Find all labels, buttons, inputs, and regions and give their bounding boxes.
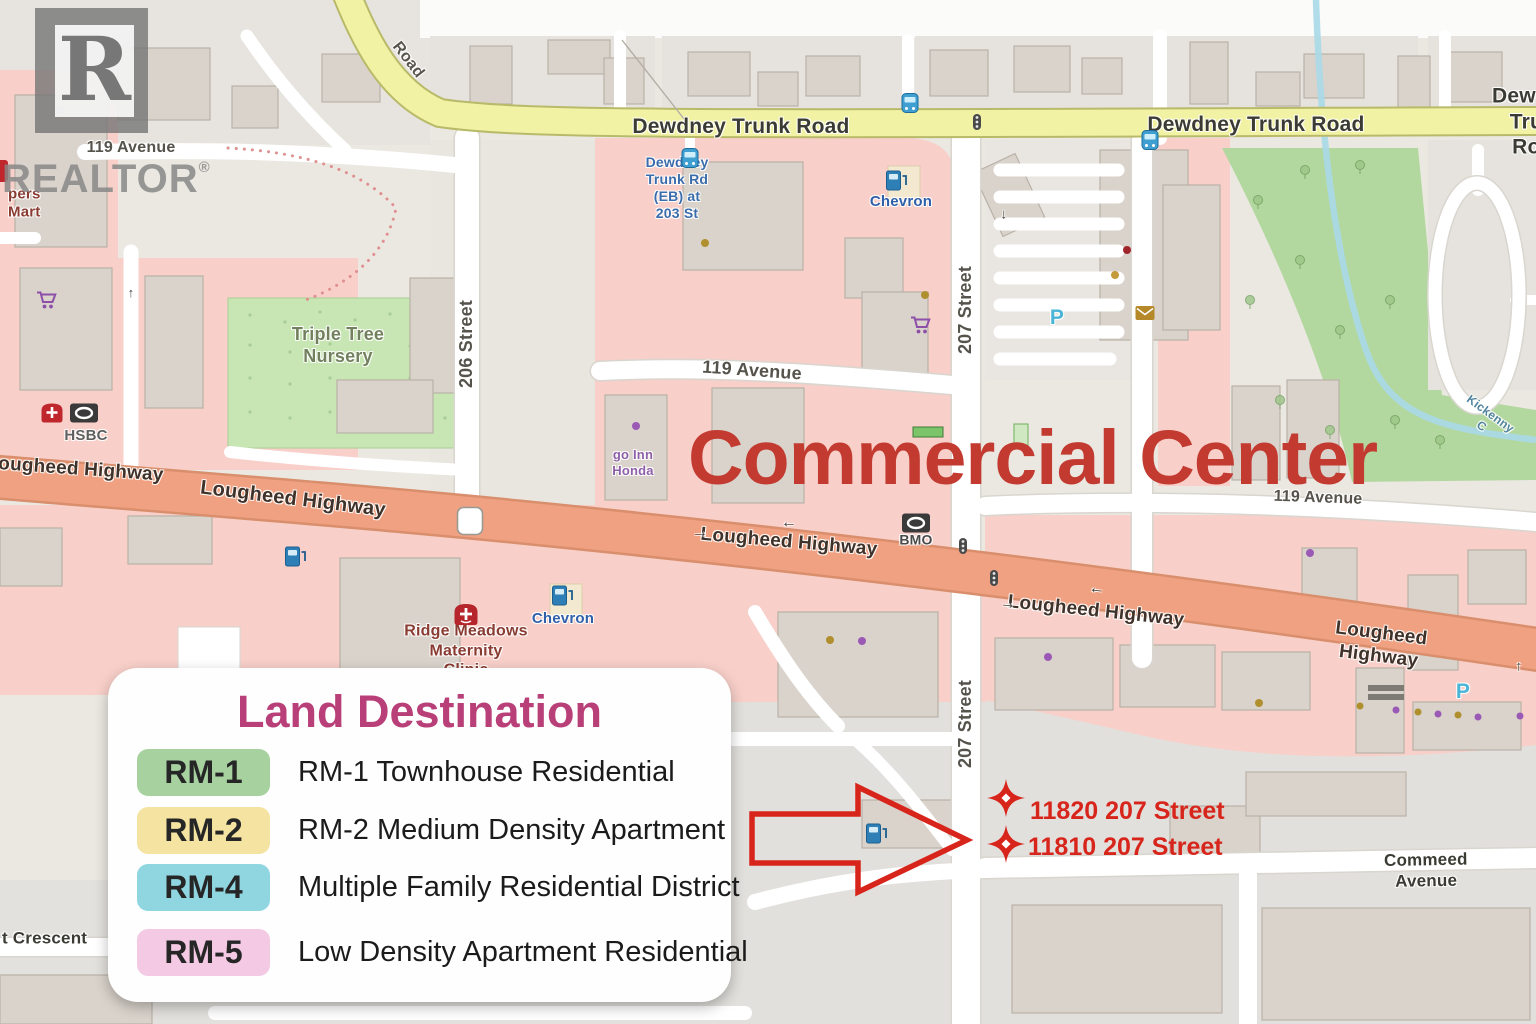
map-screenshot: RoadDewdney Trunk RoadDewdney Trunk Road… bbox=[0, 0, 1536, 1024]
legend-item-label: RM-2 Medium Density Apartment bbox=[298, 814, 725, 847]
legend-item-label: RM-1 Townhouse Residential bbox=[298, 756, 675, 789]
legend-item-label: Low Density Apartment Residential bbox=[298, 936, 748, 969]
legend-swatch: RM-1 bbox=[137, 749, 270, 796]
legend-item: RM-1RM-1 Townhouse Residential bbox=[137, 749, 675, 796]
legend-swatch: RM-2 bbox=[137, 807, 270, 854]
legend-item: RM-2RM-2 Medium Density Apartment bbox=[137, 807, 725, 854]
legend-swatch: RM-5 bbox=[137, 929, 270, 976]
legend-item: RM-4Multiple Family Residential District bbox=[137, 864, 740, 911]
legend-item: RM-5Low Density Apartment Residential bbox=[137, 929, 748, 976]
legend-item-label: Multiple Family Residential District bbox=[298, 871, 740, 904]
legend-swatch: RM-4 bbox=[137, 864, 270, 911]
legend-title: Land Destination bbox=[108, 686, 731, 738]
legend-card: Land Destination RM-1RM-1 Townhouse Resi… bbox=[108, 668, 731, 1002]
